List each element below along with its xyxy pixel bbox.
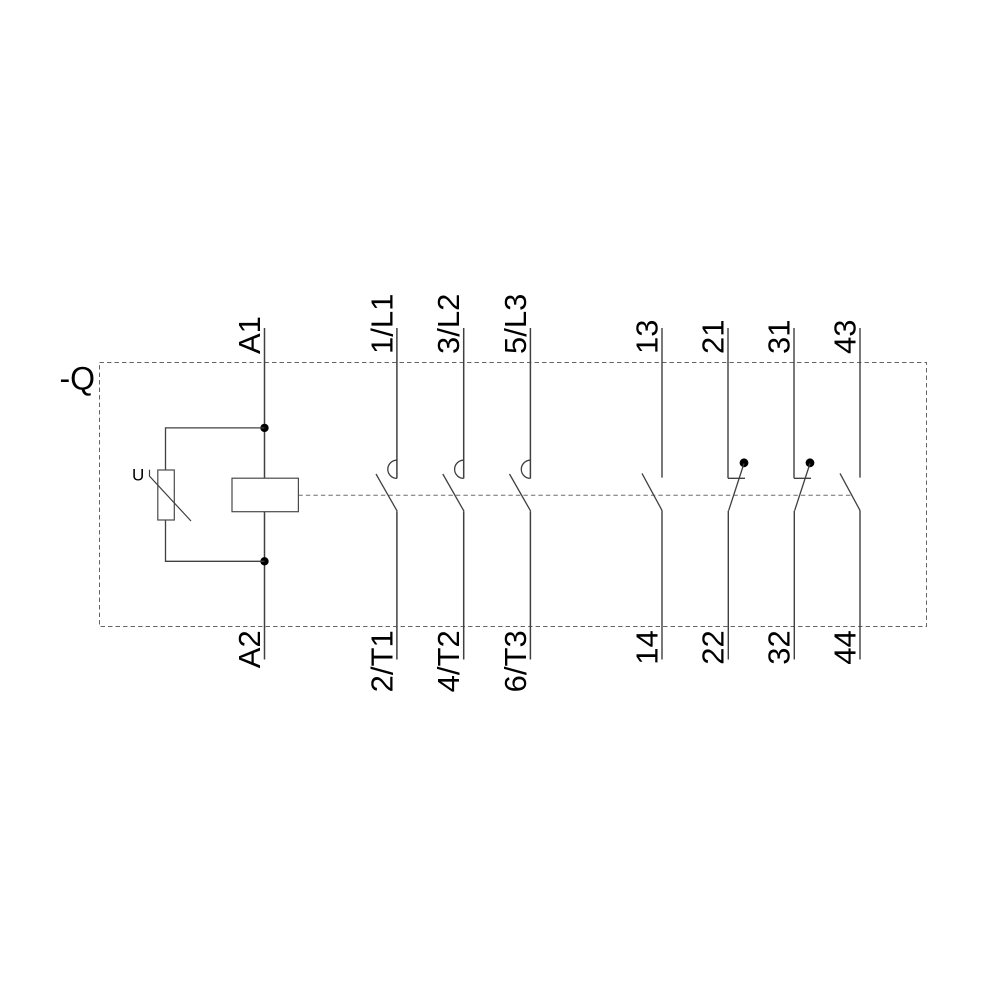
- svg-text:1/L1: 1/L1: [364, 294, 399, 354]
- svg-text:13: 13: [630, 320, 665, 354]
- svg-text:44: 44: [828, 630, 863, 664]
- svg-text:5/L3: 5/L3: [498, 294, 533, 354]
- svg-text:-Q: -Q: [60, 361, 96, 397]
- svg-text:A1: A1: [232, 316, 267, 354]
- svg-text:4/T2: 4/T2: [431, 630, 466, 692]
- svg-text:22: 22: [696, 630, 731, 664]
- svg-text:32: 32: [762, 630, 797, 664]
- svg-text:21: 21: [696, 320, 731, 354]
- svg-text:6/T3: 6/T3: [498, 630, 533, 692]
- svg-text:31: 31: [762, 320, 797, 354]
- svg-text:U: U: [132, 466, 144, 485]
- svg-text:14: 14: [630, 630, 665, 664]
- svg-text:43: 43: [828, 320, 863, 354]
- svg-text:3/L2: 3/L2: [431, 294, 466, 354]
- svg-text:2/T1: 2/T1: [364, 630, 399, 692]
- svg-text:A2: A2: [232, 630, 267, 668]
